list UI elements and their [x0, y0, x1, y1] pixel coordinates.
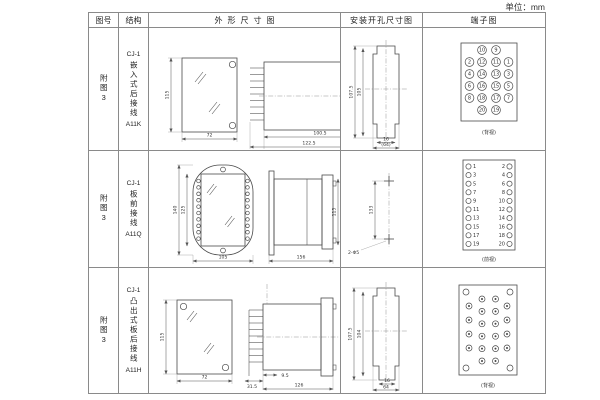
- outline-drawing-a11q: 140 125 105: [149, 151, 341, 268]
- terminal-drawing-a11q: 1234567891011121314151617181920 (前视): [423, 151, 546, 268]
- dim-offset: 9.5: [281, 373, 288, 379]
- svg-text:15: 15: [493, 84, 499, 90]
- svg-text:16: 16: [479, 84, 485, 90]
- svg-text:19: 19: [493, 108, 499, 114]
- header-fig-no: 图号: [89, 13, 119, 28]
- front-view: 140 125 105: [173, 165, 254, 264]
- svg-text:9: 9: [473, 199, 476, 205]
- svg-text:8: 8: [468, 96, 471, 102]
- svg-text:19: 19: [473, 242, 479, 248]
- code-label: A11Q: [125, 231, 141, 238]
- terminal-pins: [466, 296, 510, 364]
- dim-cutout-height-inner: 104: [357, 330, 363, 339]
- svg-text:7: 7: [507, 96, 510, 102]
- fig-no-a11h: 附图3: [89, 268, 119, 394]
- outline-svg-a11h: 115 72: [149, 268, 340, 393]
- header-outline: 外形尺寸图: [149, 13, 341, 28]
- svg-text:12: 12: [479, 60, 485, 66]
- terminal-drawing-a11h: (背视): [423, 268, 546, 394]
- terminal-svg-a11q: 1234567891011121314151617181920 (前视): [423, 151, 545, 267]
- terminal-svg-a11h: (背视): [423, 268, 545, 393]
- model-label: CJ-1: [127, 287, 141, 294]
- front-view: 115 72: [160, 300, 233, 384]
- edge-terminals: [197, 179, 250, 240]
- svg-text:2: 2: [468, 60, 471, 66]
- svg-text:11: 11: [473, 207, 479, 213]
- terminal-pins: 2143658710912111413161518172019: [465, 46, 513, 115]
- hole-callout: 2-Φ5: [348, 250, 359, 256]
- side-view: 100.5 35 122.5: [250, 40, 340, 149]
- svg-text:18: 18: [479, 96, 485, 102]
- fig-no-a11k: 附图3: [89, 28, 119, 151]
- structure-type-label: 嵌入式后接线: [130, 61, 138, 118]
- svg-text:14: 14: [499, 216, 505, 222]
- view-label: (背视): [482, 129, 496, 136]
- svg-text:13: 13: [493, 72, 499, 78]
- dim-cutout-height-outer: 107.5: [348, 327, 354, 340]
- dim-front-height: 115: [165, 91, 171, 100]
- document-page: 单位：mm 图号 结构 外形尺寸图 安装开孔尺寸图 端子图 附图3 CJ-1 嵌…: [0, 0, 600, 400]
- svg-text:6: 6: [468, 84, 471, 90]
- structure-type-label: 板前接线: [130, 190, 138, 228]
- structure-a11h: CJ-1 凸出式板后接线 A11H: [119, 268, 149, 394]
- svg-text:14: 14: [479, 72, 485, 78]
- outline-drawing-a11h: 115 72: [149, 268, 341, 394]
- outline-svg-a11k: 115 72: [149, 28, 340, 150]
- svg-text:8: 8: [502, 190, 505, 196]
- svg-text:7: 7: [473, 190, 476, 196]
- dim-total-length: 122.5: [302, 141, 315, 147]
- svg-text:4: 4: [502, 173, 505, 179]
- model-label: CJ-1: [127, 51, 141, 58]
- svg-text:17: 17: [493, 96, 499, 102]
- dim-body-length: 100.5: [313, 131, 326, 137]
- view-label: (背视): [481, 382, 495, 389]
- dim-cutout-height-inner: 105: [357, 88, 363, 97]
- code-label: A11K: [126, 121, 141, 128]
- svg-text:18: 18: [499, 233, 505, 239]
- model-label: CJ-1: [127, 180, 141, 187]
- svg-text:20: 20: [499, 242, 505, 248]
- svg-text:1: 1: [507, 60, 510, 66]
- svg-text:5: 5: [507, 84, 510, 90]
- header-terminal: 端子图: [423, 13, 546, 28]
- svg-text:12: 12: [499, 207, 505, 213]
- svg-text:10: 10: [479, 48, 485, 54]
- dim-side-length: 156: [297, 255, 306, 261]
- dim-notch-width: 16: [383, 137, 389, 143]
- dim-inner-height: 125: [181, 206, 187, 215]
- svg-text:9: 9: [494, 48, 497, 54]
- svg-text:6: 6: [502, 181, 505, 187]
- fig-no-label: 附图3: [100, 194, 108, 224]
- dim-front-height: 115: [160, 333, 166, 342]
- side-view: 9.5 31.5 126: [245, 284, 339, 390]
- terminal-svg-a11k: 2143658710912111413161518172019 (背视): [423, 28, 545, 150]
- dim-overall-width: 64: [383, 385, 389, 391]
- svg-text:13: 13: [473, 216, 479, 222]
- structure-a11q: CJ-1 板前接线 A11Q: [119, 151, 149, 268]
- side-view: 156 115: [269, 171, 338, 264]
- front-view: 115 72: [165, 58, 238, 142]
- structure-a11k: CJ-1 嵌入式后接线 A11K: [119, 28, 149, 151]
- svg-text:11: 11: [493, 60, 499, 66]
- dim-side-height: 115: [332, 208, 338, 217]
- install-drawing-a11k: 107.5 105 16 (64): [341, 28, 423, 151]
- svg-text:2: 2: [502, 164, 505, 170]
- terminal-comb: [250, 68, 264, 120]
- terminal-drawing-a11k: 2143658710912111413161518172019 (背视): [423, 28, 546, 151]
- dim-notch-width: 16: [384, 378, 390, 384]
- svg-text:10: 10: [499, 199, 505, 205]
- terminal-comb: [249, 310, 263, 376]
- dim-plate-height: 140: [173, 206, 179, 215]
- dim-front-width: 72: [207, 133, 213, 139]
- dim-comb-depth: 31.5: [247, 384, 257, 390]
- dim-front-width: 72: [202, 375, 208, 381]
- dimension-table: 图号 结构 外形尺寸图 安装开孔尺寸图 端子图 附图3 CJ-1 嵌入式后接线 …: [88, 12, 546, 394]
- fig-no-a11q: 附图3: [89, 151, 119, 268]
- svg-text:3: 3: [507, 72, 510, 78]
- svg-text:15: 15: [473, 224, 479, 230]
- dim-hole-spacing: 133: [369, 206, 375, 215]
- view-label: (前视): [482, 256, 496, 263]
- install-svg-a11q: 133 2-Φ5: [341, 151, 422, 267]
- code-label: A11H: [126, 367, 142, 374]
- fig-no-label: 附图3: [100, 316, 108, 346]
- outline-svg-a11q: 140 125 105: [149, 151, 340, 267]
- dim-plate-width: 105: [219, 255, 228, 261]
- install-drawing-a11h: 107.5 104 16 64: [341, 268, 423, 394]
- svg-text:20: 20: [479, 108, 485, 114]
- header-structure: 结构: [119, 13, 149, 28]
- install-drawing-a11q: 133 2-Φ5: [341, 151, 423, 268]
- outline-drawing-a11k: 115 72: [149, 28, 341, 151]
- install-svg-a11h: 107.5 104 16 64: [341, 268, 422, 393]
- dim-overall-width: (64): [381, 142, 391, 148]
- install-svg-a11k: 107.5 105 16 (64): [341, 28, 422, 150]
- dim-body-length: 126: [295, 383, 304, 389]
- structure-type-label: 凸出式板后接线: [130, 297, 138, 364]
- fig-no-label: 附图3: [100, 74, 108, 104]
- svg-text:5: 5: [473, 181, 476, 187]
- svg-text:4: 4: [468, 72, 471, 78]
- svg-text:17: 17: [473, 233, 479, 239]
- terminal-pins: 1234567891011121314151617181920: [466, 164, 512, 248]
- svg-text:16: 16: [499, 224, 505, 230]
- header-install: 安装开孔尺寸图: [341, 13, 423, 28]
- svg-text:1: 1: [473, 164, 476, 170]
- svg-text:3: 3: [473, 173, 476, 179]
- dim-cutout-height-outer: 107.5: [349, 85, 355, 98]
